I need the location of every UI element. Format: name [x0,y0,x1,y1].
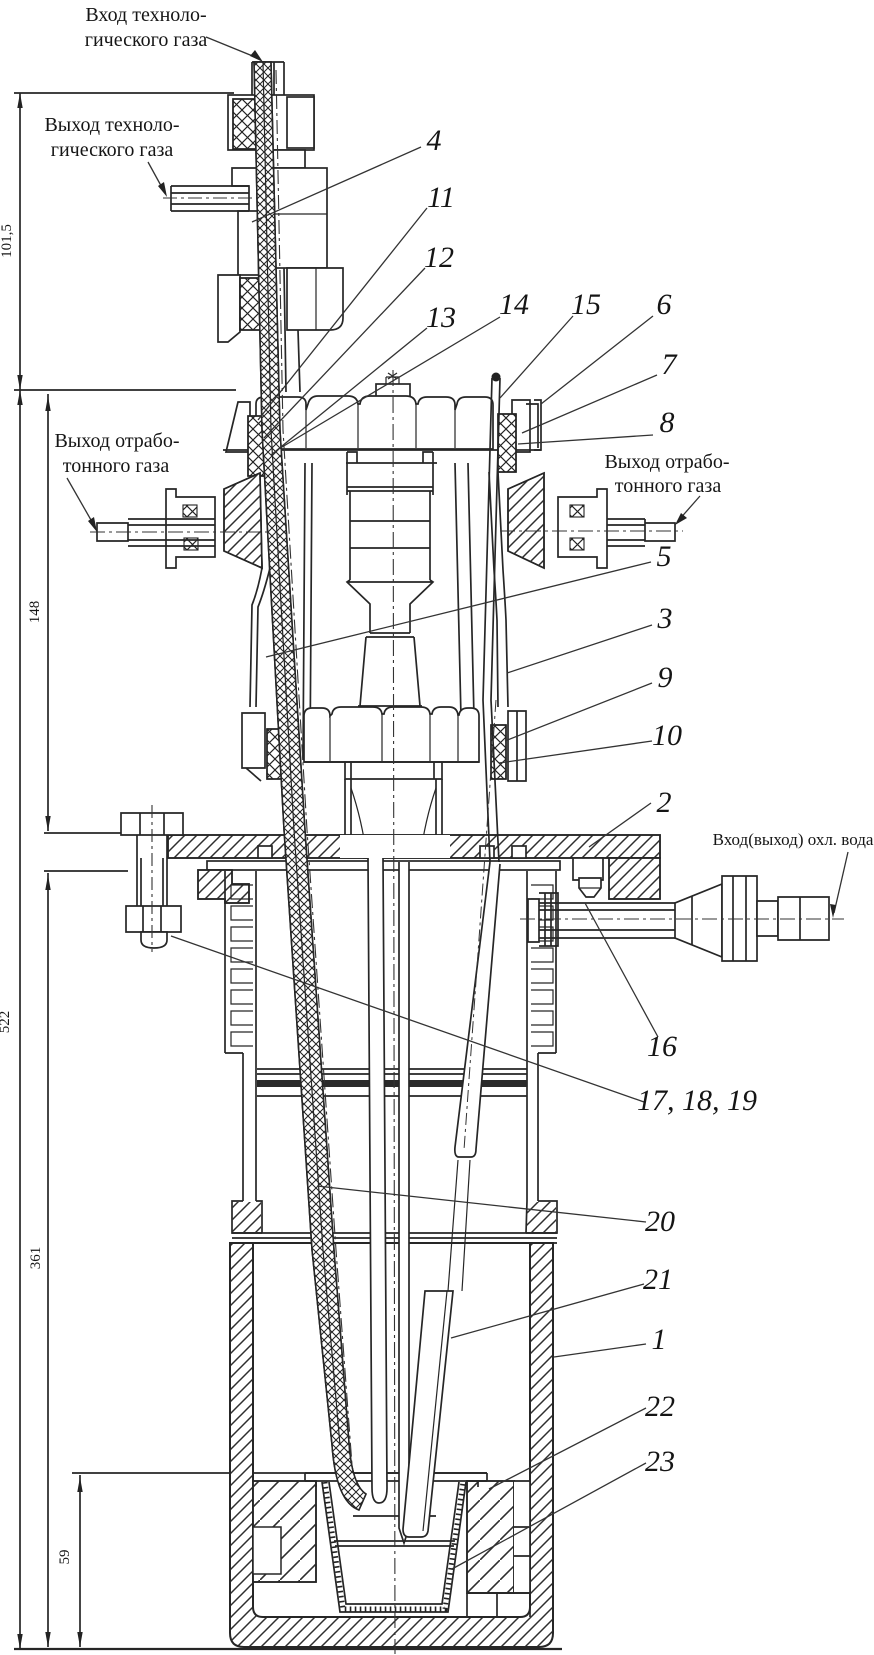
svg-text:Выход техноло-: Выход техноло- [44,114,179,136]
svg-text:тонного газа: тонного газа [615,475,722,497]
svg-text:10: 10 [652,719,682,752]
svg-text:14: 14 [499,288,529,321]
svg-text:тонного газа: тонного газа [63,455,170,477]
svg-text:Вход техноло-: Вход техноло- [85,4,206,26]
svg-text:101,5: 101,5 [0,224,15,258]
svg-text:2: 2 [657,786,672,819]
svg-text:522: 522 [0,1011,13,1034]
svg-text:8: 8 [660,406,675,439]
svg-text:22: 22 [645,1390,675,1423]
svg-text:16: 16 [647,1030,677,1063]
svg-text:361: 361 [28,1247,44,1270]
svg-text:3: 3 [657,602,673,635]
svg-text:13: 13 [426,301,456,334]
svg-text:9: 9 [658,661,673,694]
svg-text:15: 15 [571,288,601,321]
svg-text:148: 148 [27,601,43,624]
svg-text:21: 21 [643,1263,673,1296]
svg-text:4: 4 [427,124,442,157]
svg-text:7: 7 [662,348,679,381]
svg-text:11: 11 [427,181,455,214]
svg-text:12: 12 [424,241,454,274]
svg-text:Выход отрабо-: Выход отрабо- [604,451,729,473]
svg-text:Выход отрабо-: Выход отрабо- [54,430,179,452]
svg-text:гического газа: гического газа [51,139,174,161]
svg-text:17, 18, 19: 17, 18, 19 [637,1084,757,1117]
svg-text:59: 59 [57,1550,73,1565]
svg-text:6: 6 [657,288,672,321]
svg-text:20: 20 [645,1205,675,1238]
svg-text:гического газа: гического газа [85,29,208,51]
svg-text:23: 23 [645,1445,675,1478]
svg-text:Вход(выход) охл. вода: Вход(выход) охл. вода [713,830,874,849]
svg-text:1: 1 [652,1323,667,1356]
svg-text:5: 5 [657,540,672,573]
